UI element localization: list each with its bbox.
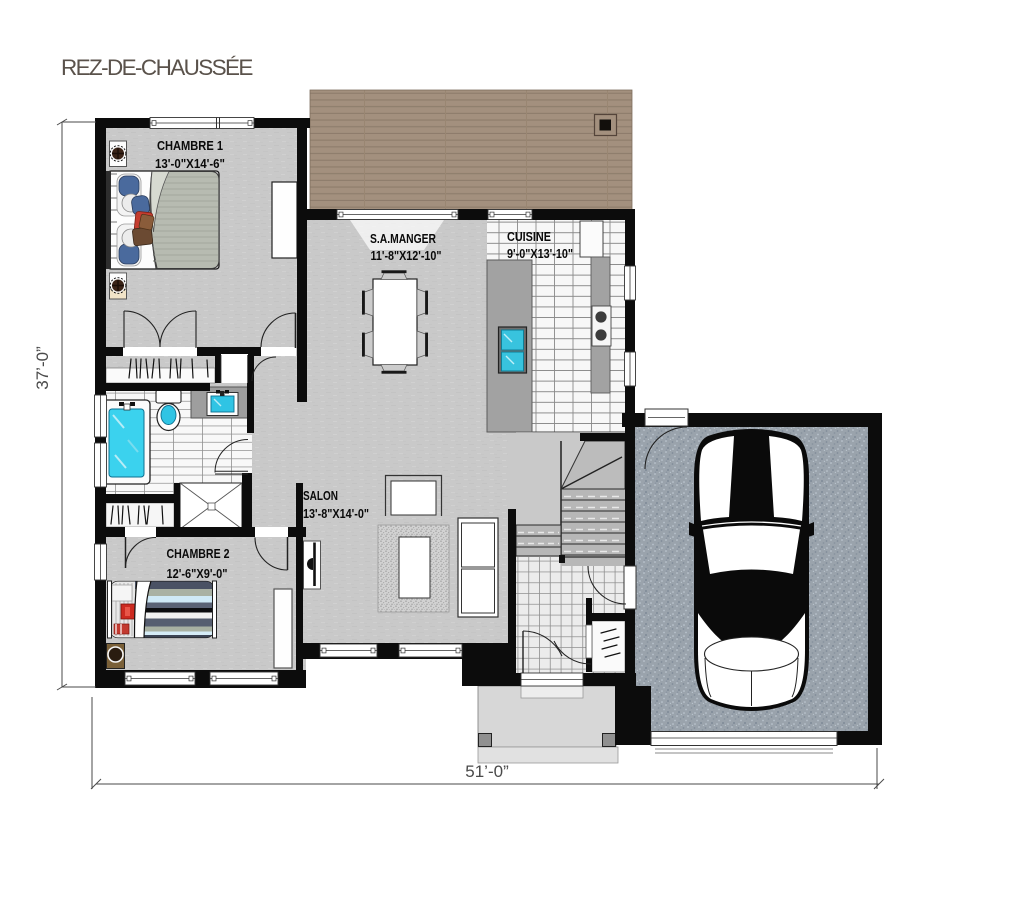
svg-text:REZ-DE-CHAUSSÉE: REZ-DE-CHAUSSÉE xyxy=(61,55,256,80)
svg-text:S.A.MANGER: S.A.MANGER xyxy=(370,231,436,246)
svg-text:13'-0"X14'-6": 13'-0"X14'-6" xyxy=(155,156,225,171)
svg-text:CUISINE: CUISINE xyxy=(507,229,551,244)
svg-text:37’-0”: 37’-0” xyxy=(33,346,52,390)
svg-text:CHAMBRE 1: CHAMBRE 1 xyxy=(157,138,223,153)
svg-text:13'-8"X14'-0": 13'-8"X14'-0" xyxy=(303,506,369,521)
svg-text:CHAMBRE 2: CHAMBRE 2 xyxy=(167,546,230,561)
svg-text:11'-8"X12'-10": 11'-8"X12'-10" xyxy=(371,248,442,263)
svg-text:SALON: SALON xyxy=(303,488,338,503)
svg-text:12'-6"X9'-0": 12'-6"X9'-0" xyxy=(167,566,228,581)
svg-text:51’-0”: 51’-0” xyxy=(465,762,509,781)
svg-text:9'-0"X13'-10": 9'-0"X13'-10" xyxy=(507,246,573,261)
